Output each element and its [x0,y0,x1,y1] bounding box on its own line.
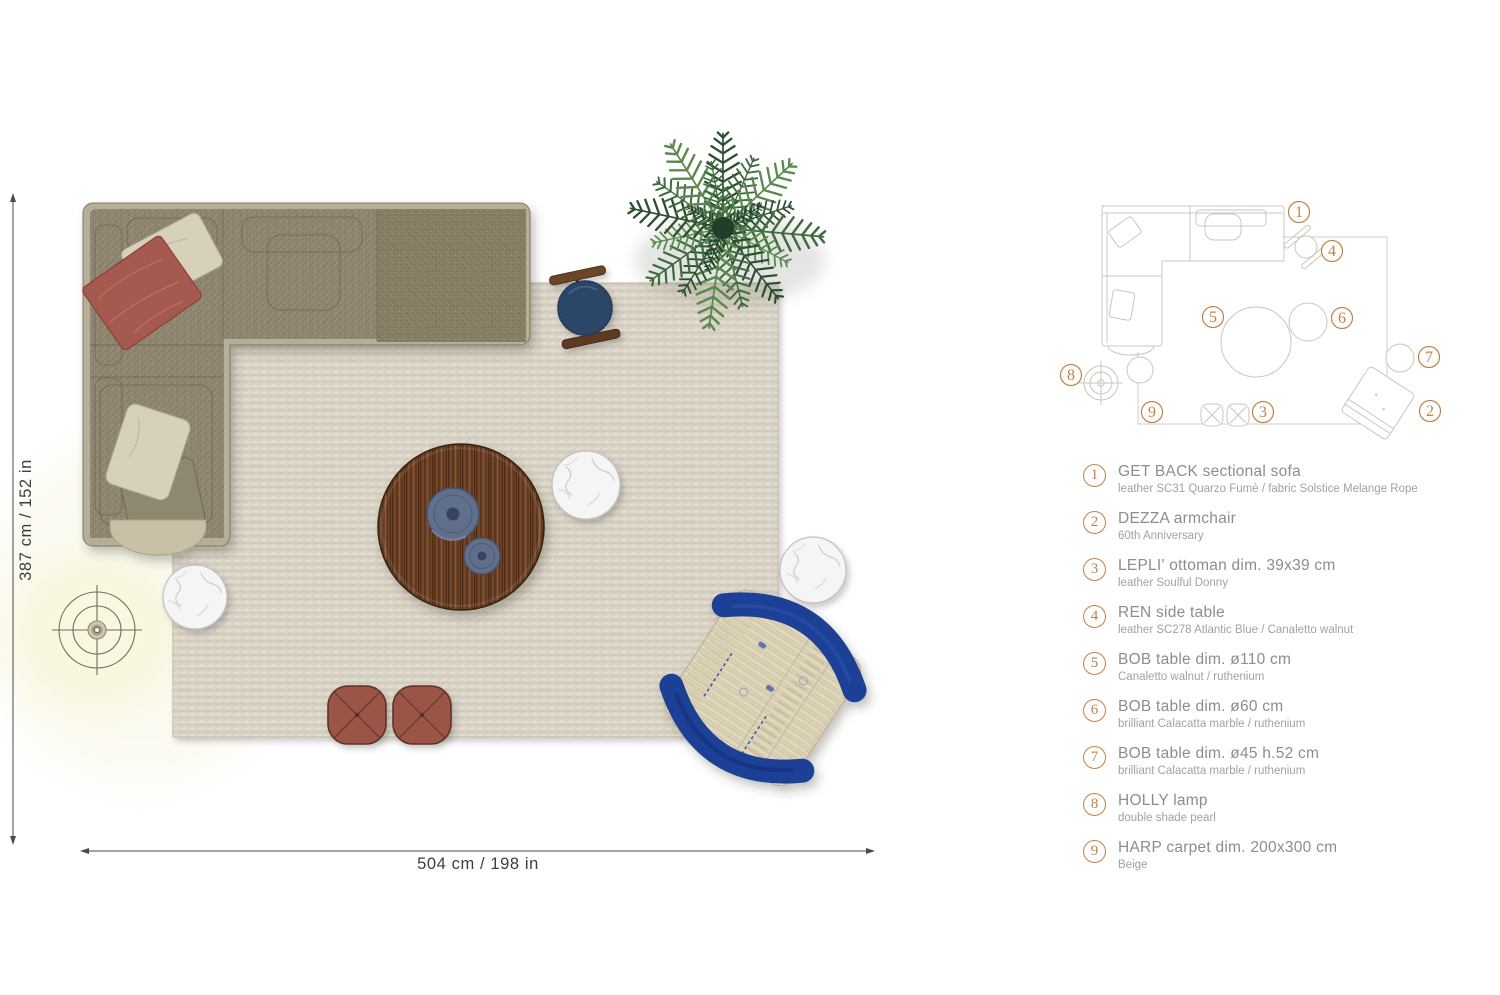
svg-text:7: 7 [1425,349,1433,366]
callout-7: 7 [1419,347,1440,368]
schematic-bob-110 [1221,307,1291,377]
legend-title: BOB table dim. ø45 h.52 cm [1118,744,1319,763]
svg-text:6: 6 [1338,310,1346,327]
serving-tray-small [464,538,500,574]
schematic-bob-60 [1289,303,1327,341]
callout-3: 3 [1253,402,1274,423]
floor-plan-page: 387 cm / 152 in 504 cm / 198 in [0,0,1500,995]
legend-item-3: 3 LEPLI' ottoman dim. 39x39 cm leather S… [1083,556,1493,590]
legend-title: BOB table dim. ø60 cm [1118,697,1305,716]
legend-item-6: 6 BOB table dim. ø60 cm brilliant Calaca… [1083,697,1493,731]
callout-9: 9 [1142,402,1163,423]
legend-subtitle: Canaletto walnut / ruthenium [1118,670,1291,684]
legend-title: LEPLI' ottoman dim. 39x39 cm [1118,556,1336,575]
legend-subtitle: leather SC31 Quarzo Fumè / fabric Solsti… [1118,482,1418,496]
schematic-ottomans [1201,404,1249,426]
lepli-ottoman-1 [328,686,386,744]
legend-subtitle: 60th Anniversary [1118,529,1236,543]
dimension-line-horizontal [80,848,875,854]
schematic-side-table-left [1127,357,1153,383]
svg-text:8: 8 [1067,367,1075,384]
horizontal-dimension-label: 504 cm / 198 in [417,855,539,873]
legend-subtitle: brilliant Calacatta marble / ruthenium [1118,717,1305,731]
marble-side-table-left [163,565,227,629]
legend-subtitle: Beige [1118,858,1337,872]
legend-title: DEZZA armchair [1118,509,1236,528]
schematic-lamp [1079,361,1123,405]
legend-number: 2 [1083,511,1106,534]
legend-subtitle: brilliant Calacatta marble / ruthenium [1118,764,1319,778]
legend-title: GET BACK sectional sofa [1118,462,1418,481]
legend-item-2: 2 DEZZA armchair 60th Anniversary [1083,509,1493,543]
legend-title: HOLLY lamp [1118,791,1216,810]
svg-text:1: 1 [1295,204,1303,221]
schematic-plan [1079,206,1415,440]
callout-6: 6 [1332,308,1353,329]
legend-number: 6 [1083,699,1106,722]
legend-item-9: 9 HARP carpet dim. 200x300 cm Beige [1083,838,1493,872]
legend-subtitle: leather Soulful Donny [1118,576,1336,590]
legend-subtitle: leather SC278 Atlantic Blue / Canaletto … [1118,623,1353,637]
legend-item-5: 5 BOB table dim. ø110 cm Canaletto walnu… [1083,650,1493,684]
legend: 1 GET BACK sectional sofa leather SC31 Q… [1083,462,1493,885]
svg-text:3: 3 [1259,404,1267,421]
callout-1: 1 [1289,202,1310,223]
legend-item-8: 8 HOLLY lamp double shade pearl [1083,791,1493,825]
callout-5: 5 [1203,307,1224,328]
callout-8: 8 [1061,365,1082,386]
bob-table-45 [780,537,846,603]
legend-number: 7 [1083,746,1106,769]
serving-tray-large [427,488,479,540]
svg-text:2: 2 [1426,403,1434,420]
legend-title: BOB table dim. ø110 cm [1118,650,1291,669]
legend-number: 4 [1083,605,1106,628]
vertical-dimension-label: 387 cm / 152 in [17,459,35,581]
callout-4: 4 [1322,241,1343,262]
callout-2: 2 [1420,401,1441,422]
svg-text:5: 5 [1209,309,1217,326]
legend-item-7: 7 BOB table dim. ø45 h.52 cm brilliant C… [1083,744,1493,778]
legend-title: REN side table [1118,603,1353,622]
legend-item-1: 1 GET BACK sectional sofa leather SC31 Q… [1083,462,1493,496]
legend-number: 8 [1083,793,1106,816]
svg-text:9: 9 [1148,404,1156,421]
schematic-armchair [1341,366,1416,441]
schematic-bob-45 [1386,344,1414,372]
legend-title: HARP carpet dim. 200x300 cm [1118,838,1337,857]
svg-text:4: 4 [1328,243,1336,260]
bob-table-60 [552,451,620,519]
legend-number: 5 [1083,652,1106,675]
legend-subtitle: double shade pearl [1118,811,1216,825]
legend-number: 9 [1083,840,1106,863]
legend-number: 3 [1083,558,1106,581]
legend-item-4: 4 REN side table leather SC278 Atlantic … [1083,603,1493,637]
lepli-ottoman-2 [393,686,451,744]
legend-number: 1 [1083,464,1106,487]
